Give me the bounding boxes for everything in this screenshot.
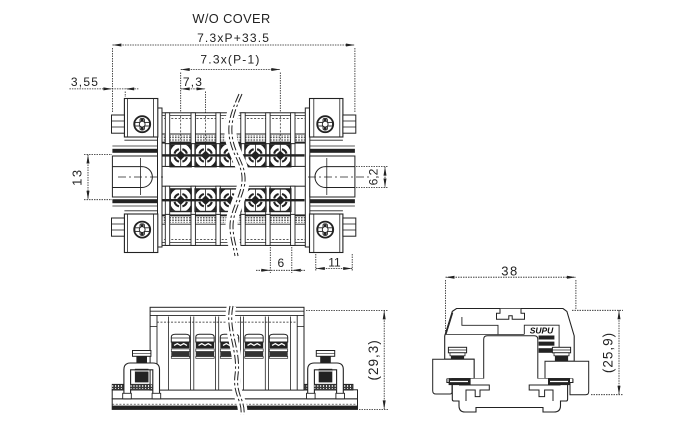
- svg-text:7.3xP+33.5: 7.3xP+33.5: [197, 31, 270, 45]
- svg-text:6: 6: [277, 256, 284, 270]
- svg-text:38: 38: [501, 263, 518, 278]
- svg-text:13: 13: [70, 168, 85, 185]
- svg-text:(25,9): (25,9): [601, 332, 616, 373]
- svg-text:(29,3): (29,3): [366, 339, 381, 380]
- svg-text:SUPU: SUPU: [530, 325, 554, 335]
- svg-text:7.3x(P-1): 7.3x(P-1): [200, 53, 260, 67]
- svg-text:11: 11: [328, 256, 341, 270]
- svg-text:7,3: 7,3: [183, 75, 203, 89]
- svg-text:W/O COVER: W/O COVER: [192, 11, 270, 26]
- svg-text:3,55: 3,55: [71, 75, 99, 89]
